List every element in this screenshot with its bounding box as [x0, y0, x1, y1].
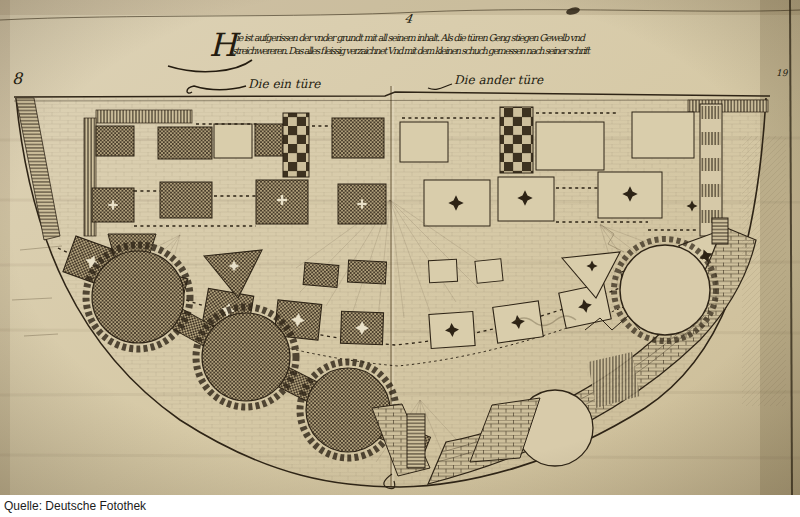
open-room: [214, 124, 252, 158]
vault-room: [347, 260, 386, 284]
margin-hatch-bleed: [742, 136, 786, 406]
crenellated-comb-left: [96, 110, 192, 123]
caption-line1: ie ist aufgerissen der vnder grundt mit …: [236, 32, 586, 44]
vault-room: [428, 259, 457, 282]
right-ladder-wall: [700, 104, 722, 236]
casemate-room: [332, 118, 384, 158]
stair-checker-right: [500, 107, 533, 173]
casemate-room: [158, 127, 212, 159]
fortification-plan-drawing: H ie ist aufgerissen der vnder grundt mi…: [0, 0, 800, 495]
stair-flight: [407, 414, 425, 468]
open-room: [536, 122, 604, 170]
bastion-tower-dark: [92, 251, 184, 343]
vault-room: [303, 263, 339, 288]
vault-room: [475, 259, 503, 284]
left-door-label: Die ein türe: [248, 77, 321, 91]
archival-photo: H ie ist aufgerissen der vnder grundt mi…: [0, 0, 800, 517]
casemate-room: [96, 126, 134, 156]
source-caption: Quelle: Deutsche Fotothek: [4, 499, 146, 513]
source-bar: Quelle: Deutsche Fotothek: [0, 495, 800, 517]
caption-line2: streichwereren. Das alles fleissig verza…: [232, 45, 591, 57]
casemate-room: [255, 124, 283, 156]
left-margin-shade: [0, 0, 10, 495]
bastion-tower-dark: [202, 313, 290, 401]
right-door-label: Die ander türe: [454, 73, 544, 87]
stair-flight: [712, 218, 728, 244]
bastion-tower-open: [620, 245, 710, 335]
manuscript-page: H ie ist aufgerissen der vnder grundt mi…: [0, 0, 800, 495]
stair-checker-left: [283, 113, 309, 177]
open-room: [400, 122, 448, 162]
right-folio-number: 19: [776, 68, 789, 78]
open-room: [632, 112, 694, 158]
casemate-room: [160, 182, 212, 218]
